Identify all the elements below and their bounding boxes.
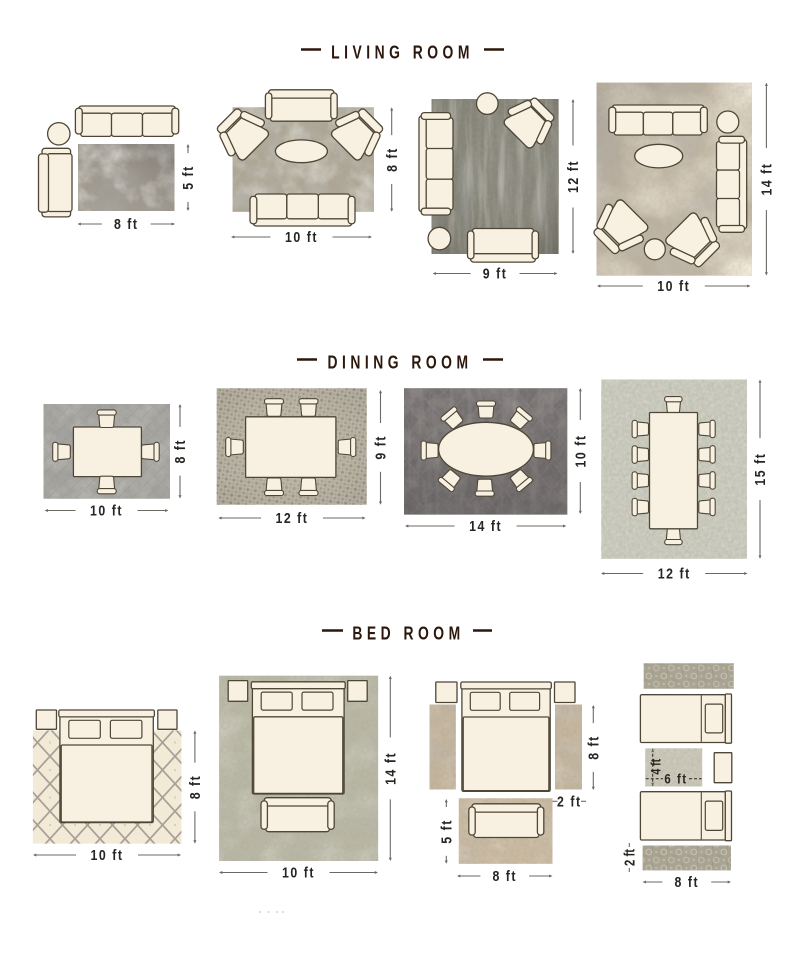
svg-text:15 ft: 15 ft [752, 453, 768, 486]
svg-text:10 ft: 10 ft [285, 229, 318, 245]
svg-text:8 ft: 8 ft [675, 874, 700, 890]
svg-text:8 ft: 8 ft [492, 868, 517, 884]
svg-text:12 ft: 12 ft [658, 566, 691, 582]
svg-text:10 ft: 10 ft [657, 278, 690, 294]
svg-text:BED ROOM: BED ROOM [352, 623, 464, 643]
svg-text:LIVING ROOM: LIVING ROOM [331, 42, 474, 62]
svg-text:10 ft: 10 ft [90, 503, 123, 519]
svg-text:8 ft: 8 ft [586, 735, 602, 760]
svg-text:14 ft: 14 ft [469, 518, 502, 534]
svg-text:6 ft: 6 ft [664, 772, 687, 787]
svg-text:5 ft: 5 ft [180, 165, 196, 190]
svg-text:14 ft: 14 ft [759, 163, 775, 196]
svg-text:14 ft: 14 ft [383, 752, 399, 785]
svg-text:9 ft: 9 ft [483, 266, 508, 282]
svg-text:DINING ROOM: DINING ROOM [327, 352, 472, 372]
svg-text:10 ft: 10 ft [91, 847, 124, 863]
svg-text:9 ft: 9 ft [373, 435, 389, 460]
svg-text:12 ft: 12 ft [565, 160, 581, 193]
svg-text:8 ft: 8 ft [172, 439, 188, 464]
svg-text:8 ft: 8 ft [187, 775, 203, 800]
svg-text:5 ft: 5 ft [439, 819, 455, 844]
svg-text:2 ft: 2 ft [557, 793, 582, 809]
svg-text:2 ft: 2 ft [621, 848, 638, 866]
svg-text:4 ft: 4 ft [648, 759, 664, 775]
svg-text:8 ft: 8 ft [384, 147, 400, 172]
svg-text:10 ft: 10 ft [573, 435, 589, 468]
svg-text:12 ft: 12 ft [275, 510, 308, 526]
svg-text:10 ft: 10 ft [282, 865, 315, 881]
svg-text:8 ft: 8 ft [114, 216, 139, 232]
